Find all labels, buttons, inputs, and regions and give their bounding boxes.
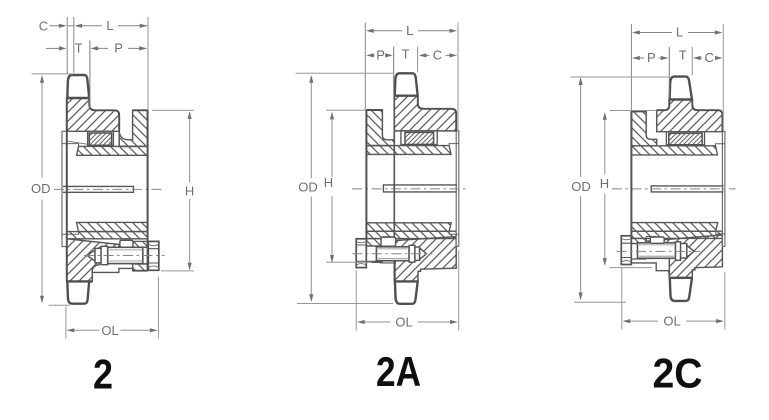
svg-text:OL: OL	[101, 323, 118, 338]
svg-text:OD: OD	[571, 179, 591, 194]
svg-text:OL: OL	[663, 313, 680, 328]
svg-text:L: L	[676, 25, 683, 40]
svg-text:P: P	[114, 41, 123, 56]
svg-text:T: T	[75, 41, 83, 56]
svg-text:C: C	[39, 18, 48, 33]
svg-text:T: T	[679, 47, 687, 62]
svg-text:2: 2	[93, 351, 113, 398]
svg-text:P: P	[647, 50, 656, 65]
svg-text:2A: 2A	[376, 348, 421, 395]
svg-text:H: H	[600, 176, 609, 191]
svg-text:T: T	[402, 47, 410, 62]
svg-text:H: H	[185, 183, 194, 198]
svg-text:OD: OD	[31, 181, 51, 196]
svg-text:OL: OL	[395, 314, 412, 329]
svg-text:H: H	[324, 175, 333, 190]
svg-text:C: C	[705, 50, 714, 65]
svg-text:P: P	[376, 48, 385, 63]
svg-text:L: L	[106, 18, 113, 33]
svg-text:C: C	[433, 48, 442, 63]
svg-text:L: L	[406, 23, 413, 38]
svg-text:OD: OD	[298, 180, 318, 195]
svg-text:2C: 2C	[653, 349, 703, 396]
